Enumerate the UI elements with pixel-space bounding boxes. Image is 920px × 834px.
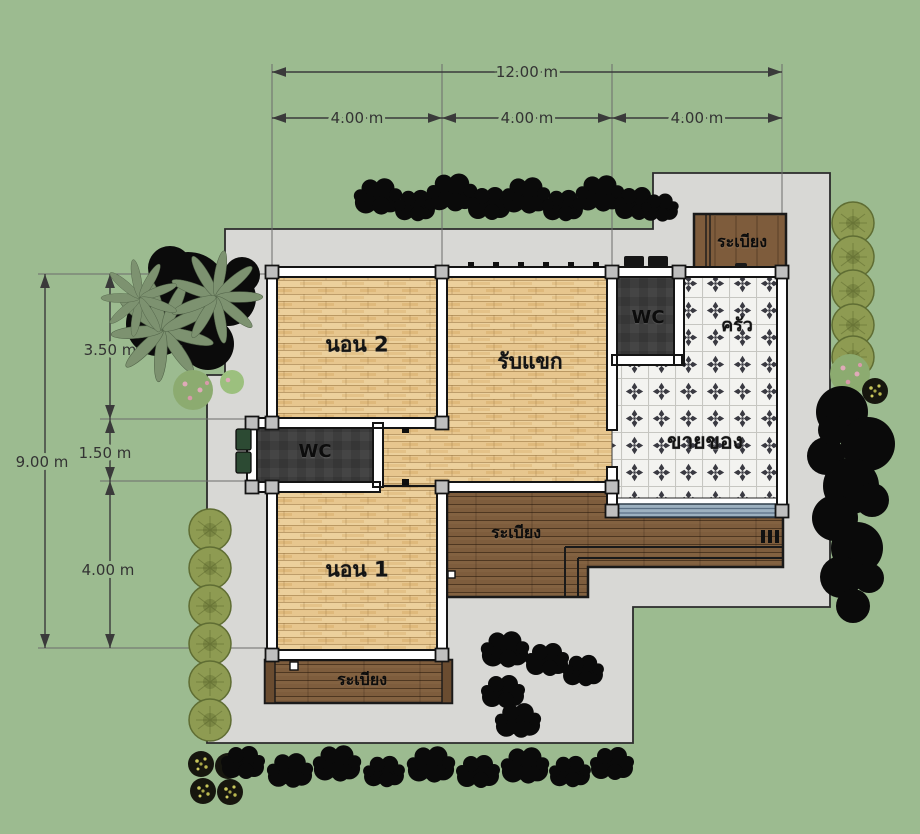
wc-middle-label: WC [298, 443, 331, 461]
counter-unit-icon [624, 256, 644, 267]
living-room-label: รับแขก [497, 352, 562, 373]
floor-plan-drawing: 12.00 m 4.00 m 4.00 m 4.00 m 9.00 m 3.50… [0, 0, 920, 834]
balcony-bottom-label: ระเบียง [337, 672, 387, 688]
deck-balusters [761, 530, 779, 543]
bush-column-right [832, 202, 874, 378]
water-tank-icon [236, 452, 251, 473]
door-hinge [402, 479, 409, 485]
dim-label-1_5m: 1.50 m [79, 444, 132, 462]
bedroom1-label: นอน 1 [325, 560, 388, 581]
wc-top-label: WC [631, 309, 664, 327]
floor-plan-canvas: 12.00 m 4.00 m 4.00 m 4.00 m 9.00 m 3.50… [0, 0, 920, 834]
dim-label-4m-c: 4.00 m [671, 109, 724, 127]
balcony-top-label: ระเบียง [717, 234, 767, 250]
kitchen-label: ครัว [721, 317, 753, 335]
shop-label: ขายของ [667, 432, 743, 453]
living-floor [442, 272, 617, 487]
water-tank-icon [236, 429, 251, 450]
dim-label-12m: 12.00 m [496, 63, 558, 81]
door-hinge [402, 427, 409, 433]
balcony-middle-label: ระเบียง [491, 525, 541, 541]
dim-label-4m-a: 4.00 m [331, 109, 384, 127]
counter-unit-icon [648, 256, 668, 267]
dim-label-9m: 9.00 m [16, 453, 69, 471]
deck-door-marker [448, 571, 455, 578]
shop-window [607, 498, 782, 517]
dim-label-3_5m: 3.50 m [84, 341, 137, 359]
balcony-door-marker [290, 662, 298, 670]
bedroom2-label: นอน 2 [325, 335, 388, 356]
dim-label-4m-left: 4.00 m [82, 561, 135, 579]
dim-label-4m-b: 4.00 m [501, 109, 554, 127]
